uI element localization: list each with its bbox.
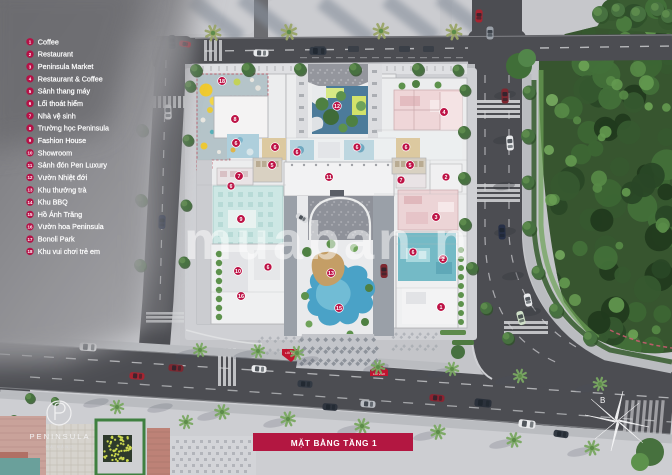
svg-text:6: 6 [296,150,299,156]
svg-text:16: 16 [28,225,33,230]
svg-text:PENINSULA: PENINSULA [29,432,90,441]
svg-text:Lối thoát hiểm: Lối thoát hiểm [38,99,83,108]
svg-text:12: 12 [334,104,340,110]
svg-text:B: B [600,396,605,405]
svg-text:Restaurant: Restaurant [38,50,73,59]
svg-text:Coffee: Coffee [38,37,59,46]
svg-text:15: 15 [28,212,33,217]
svg-text:11: 11 [326,175,332,181]
svg-text:muaban.n: muaban.n [184,211,471,271]
svg-text:2: 2 [445,175,448,181]
svg-text:Sảnh thang máy: Sảnh thang máy [38,87,91,96]
svg-text:1: 1 [440,305,443,311]
svg-text:6: 6 [235,141,238,147]
svg-text:Vườn Nhiệt đới: Vườn Nhiệt đới [38,173,88,182]
svg-text:13: 13 [328,271,334,277]
svg-text:6: 6 [356,145,359,151]
svg-text:7: 7 [238,174,241,180]
svg-text:Showroom: Showroom [38,148,72,157]
svg-text:18: 18 [219,79,225,85]
svg-text:Sảnh đón Pen Luxury: Sảnh đón Pen Luxury [38,161,108,170]
svg-text:MẶT BẰNG TẦNG 1: MẶT BẰNG TẦNG 1 [291,438,377,448]
svg-text:6: 6 [405,145,408,151]
svg-text:Restaurant & Coffee: Restaurant & Coffee [38,74,103,83]
svg-text:Bonoli Park: Bonoli Park [38,235,75,244]
svg-text:14: 14 [28,200,33,205]
svg-text:17: 17 [28,237,33,242]
svg-text:12: 12 [28,175,33,180]
svg-text:7: 7 [400,178,403,184]
svg-text:4: 4 [443,110,446,116]
svg-text:15: 15 [336,306,342,312]
svg-text:18: 18 [28,249,33,254]
svg-text:Khu thưởng trà: Khu thưởng trà [38,185,87,194]
svg-text:13: 13 [28,188,33,193]
svg-text:ĐÀ NẴNG: ĐÀ NẴNG [46,444,75,449]
svg-text:16: 16 [238,294,244,300]
svg-text:Trường học Peninsula: Trường học Peninsula [38,124,109,133]
svg-text:Vườn hoa Peninsula: Vườn hoa Peninsula [38,222,104,231]
svg-text:Hồ Ánh Trăng: Hồ Ánh Trăng [38,210,82,219]
svg-text:6: 6 [274,145,277,151]
svg-text:8: 8 [234,117,237,123]
svg-text:Peninsula Market: Peninsula Market [38,62,94,71]
svg-text:10: 10 [28,151,33,156]
svg-text:Khu BBQ: Khu BBQ [38,198,68,207]
svg-text:Khu vui chơi trẻ em: Khu vui chơi trẻ em [38,247,100,256]
svg-text:Fashion House: Fashion House [38,136,86,145]
svg-text:11: 11 [28,163,33,168]
svg-text:5: 5 [409,163,412,169]
svg-text:Nhà vệ sinh: Nhà vệ sinh [38,111,76,120]
svg-text:5: 5 [271,163,274,169]
